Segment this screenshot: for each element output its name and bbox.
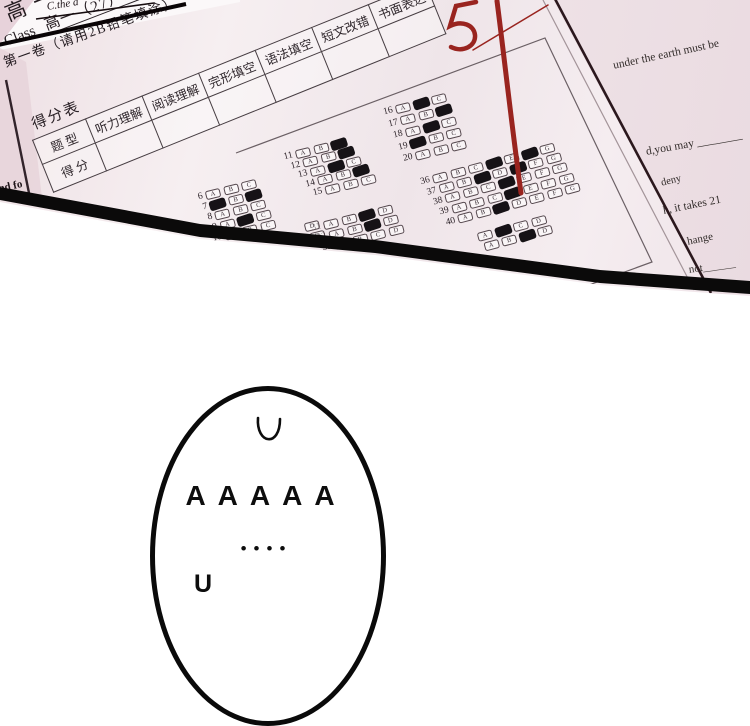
sheet-edge-line-topleft (0, 4, 186, 45)
sheet-edge-line-left (6, 80, 29, 193)
scream-text: AAAAA (150, 480, 376, 512)
panel-linework (0, 0, 750, 300)
red-digit-1-stroke (497, 1, 521, 193)
u-curve-mark (258, 418, 280, 439)
comic-page: { "panel": { "background_fragments": { "… (0, 0, 750, 586)
balloon-bottom-fragment: U (194, 570, 212, 599)
red-digit-5 (450, 2, 476, 49)
sheet-margin-line (543, 0, 694, 290)
red-score-mark (450, 1, 548, 193)
balloon-top-mark (252, 414, 292, 456)
pink-sheet-edge-line (554, 0, 711, 293)
red-thin-slash (473, 5, 548, 50)
panel-border-diagonal (0, 187, 750, 294)
ellipsis-dots: •••• (150, 539, 376, 559)
exam-photo-panel: C.the a ad fo 高一英语期中考试 Class 高一（27）班 得分表… (0, 0, 750, 300)
